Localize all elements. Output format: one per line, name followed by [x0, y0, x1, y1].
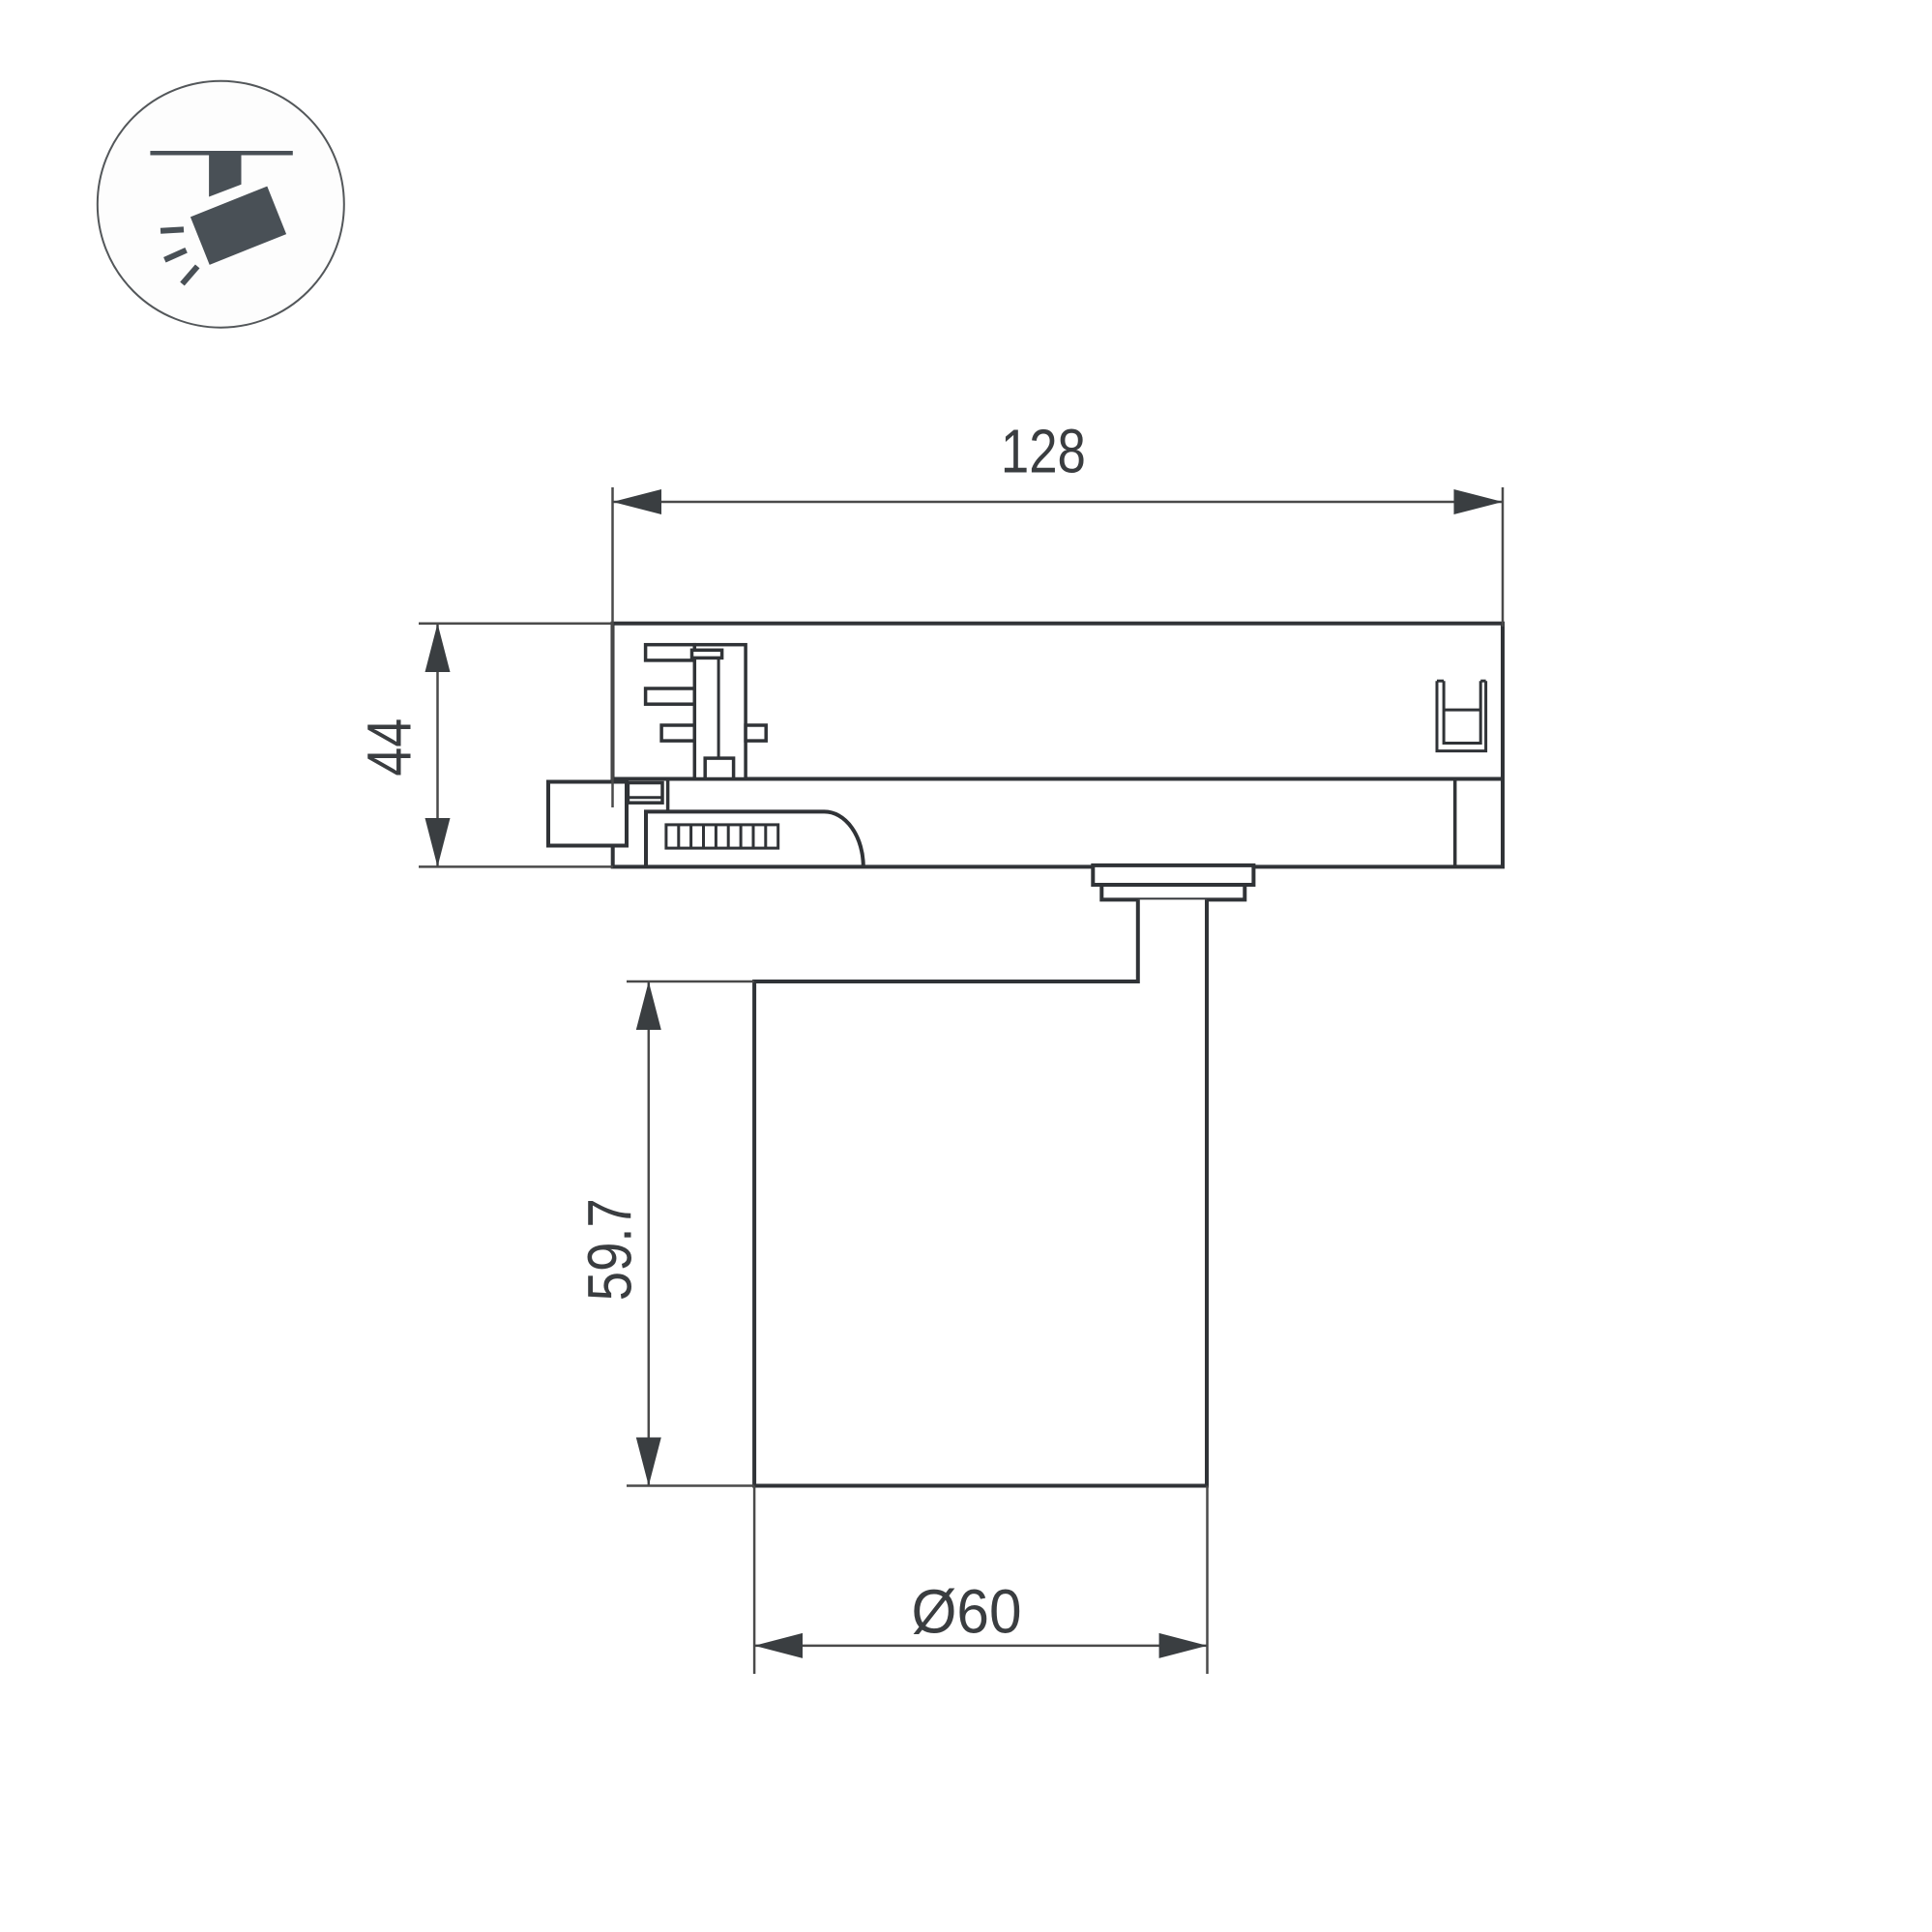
svg-text:128: 128 [1001, 417, 1086, 486]
svg-text:59.7: 59.7 [575, 1198, 645, 1301]
svg-text:Ø60: Ø60 [912, 1576, 1022, 1646]
svg-text:44: 44 [355, 718, 424, 776]
